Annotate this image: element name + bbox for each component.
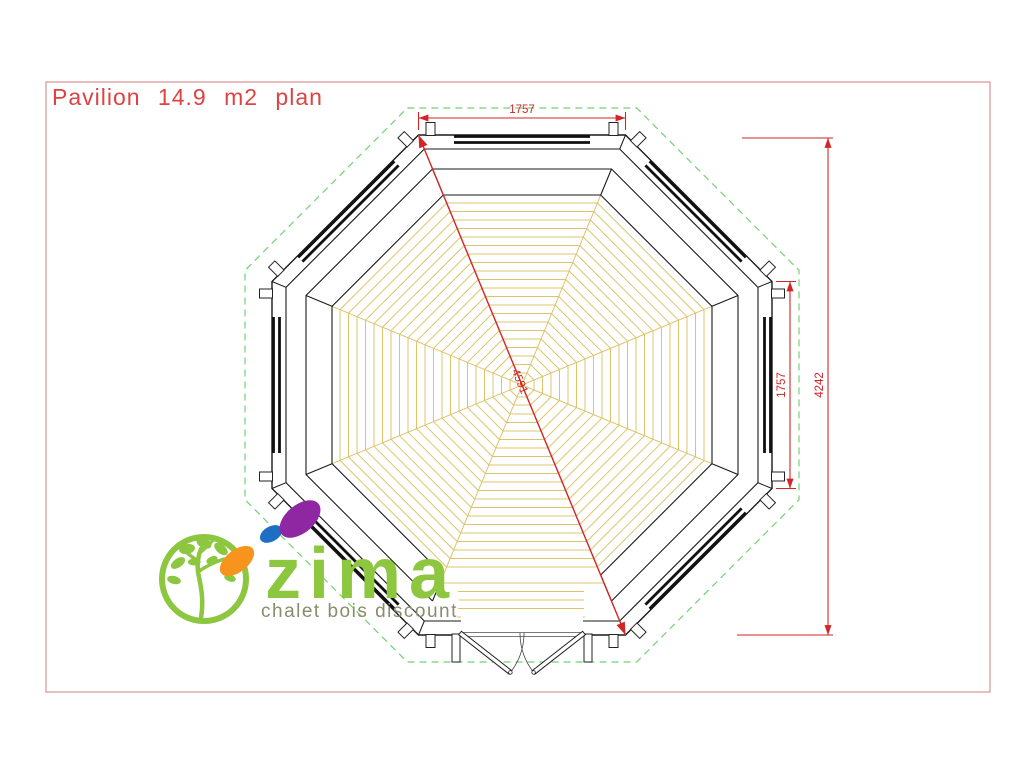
page-title: Pavilion 14.9 m2 plan [52, 84, 323, 110]
door-opening [461, 616, 583, 637]
door-jamb-left [452, 634, 460, 662]
logo-tagline-text: chalet bois discount [261, 601, 458, 622]
pavilion-plan-svg: Pavilion 14.9 m2 plan [0, 0, 1024, 768]
door-swing-arc-left [510, 633, 524, 672]
dimension-right-wall: 1757 [776, 282, 796, 489]
door-leaf-right [532, 631, 585, 674]
door-leaf-left [459, 631, 512, 674]
door-jamb-right [584, 634, 592, 662]
door-swing-arc-right [520, 633, 534, 672]
drawing-sheet: Pavilion 14.9 m2 plan [0, 0, 1024, 768]
double-door [452, 616, 592, 674]
dimension-label-right-wall: 1757 [776, 372, 788, 398]
dimension-label-overall-depth: 4242 [814, 372, 826, 398]
dimension-label-top-width: 1757 [509, 104, 535, 116]
zima-logo: zima chalet bois discount [162, 493, 458, 622]
